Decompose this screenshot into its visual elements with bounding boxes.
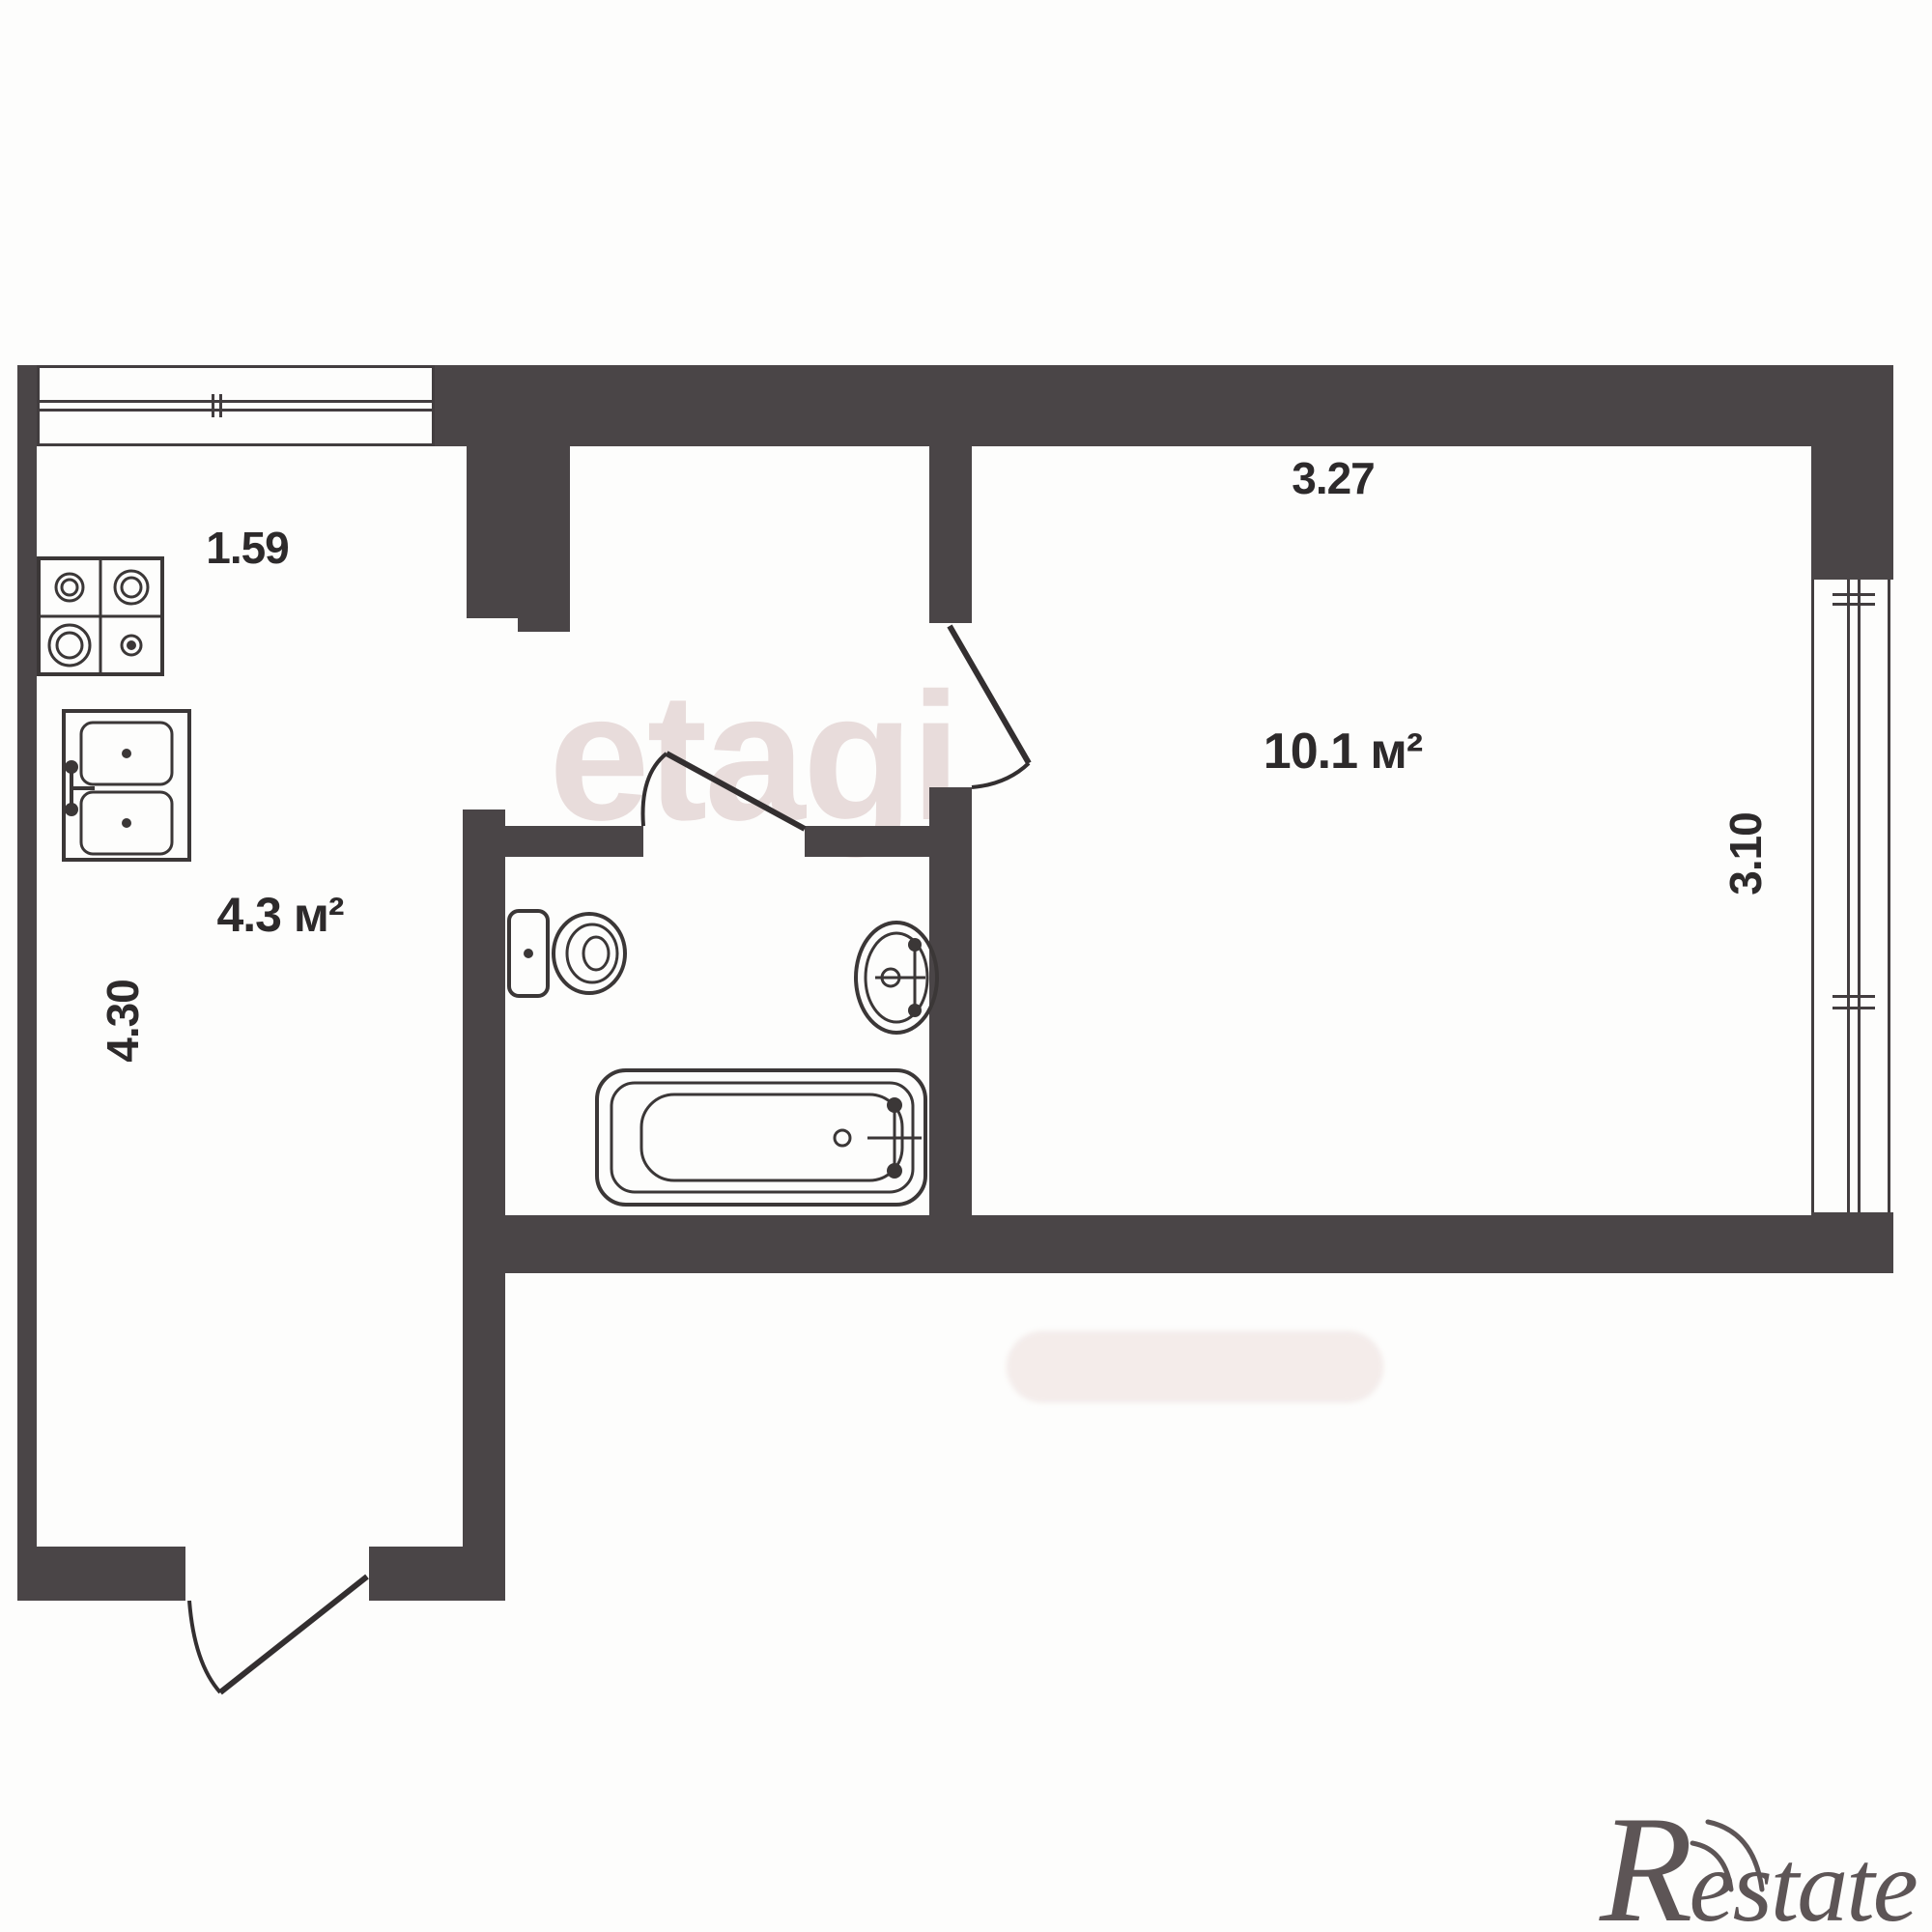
living-depth-dimension: 3.10 [1719, 796, 1772, 912]
logo-arc-inner [1692, 1843, 1731, 1889]
kitchen-area-label: 4.3 м² [169, 887, 391, 943]
stove-icon [39, 558, 162, 674]
living-width-dimension: 3.27 [1265, 452, 1401, 504]
kitchen-depth-dimension: 4.30 [97, 963, 149, 1079]
kitchen-width-dimension: 1.59 [180, 522, 315, 574]
bathroom-door-swing [643, 753, 806, 829]
toilet-icon [509, 911, 625, 996]
bathtub-icon [597, 1070, 925, 1205]
floor-plan: etagi [0, 0, 1932, 1932]
kitchen-sink-icon [64, 711, 189, 860]
washbasin-icon [856, 923, 937, 1033]
living-room-door-swing [950, 626, 1029, 787]
entrance-door-swing [189, 1577, 367, 1692]
restate-logo: Restate [1600, 1812, 1917, 1932]
living-area-label: 10.1 м² [1212, 723, 1473, 781]
fixtures-layer [0, 0, 1932, 1932]
